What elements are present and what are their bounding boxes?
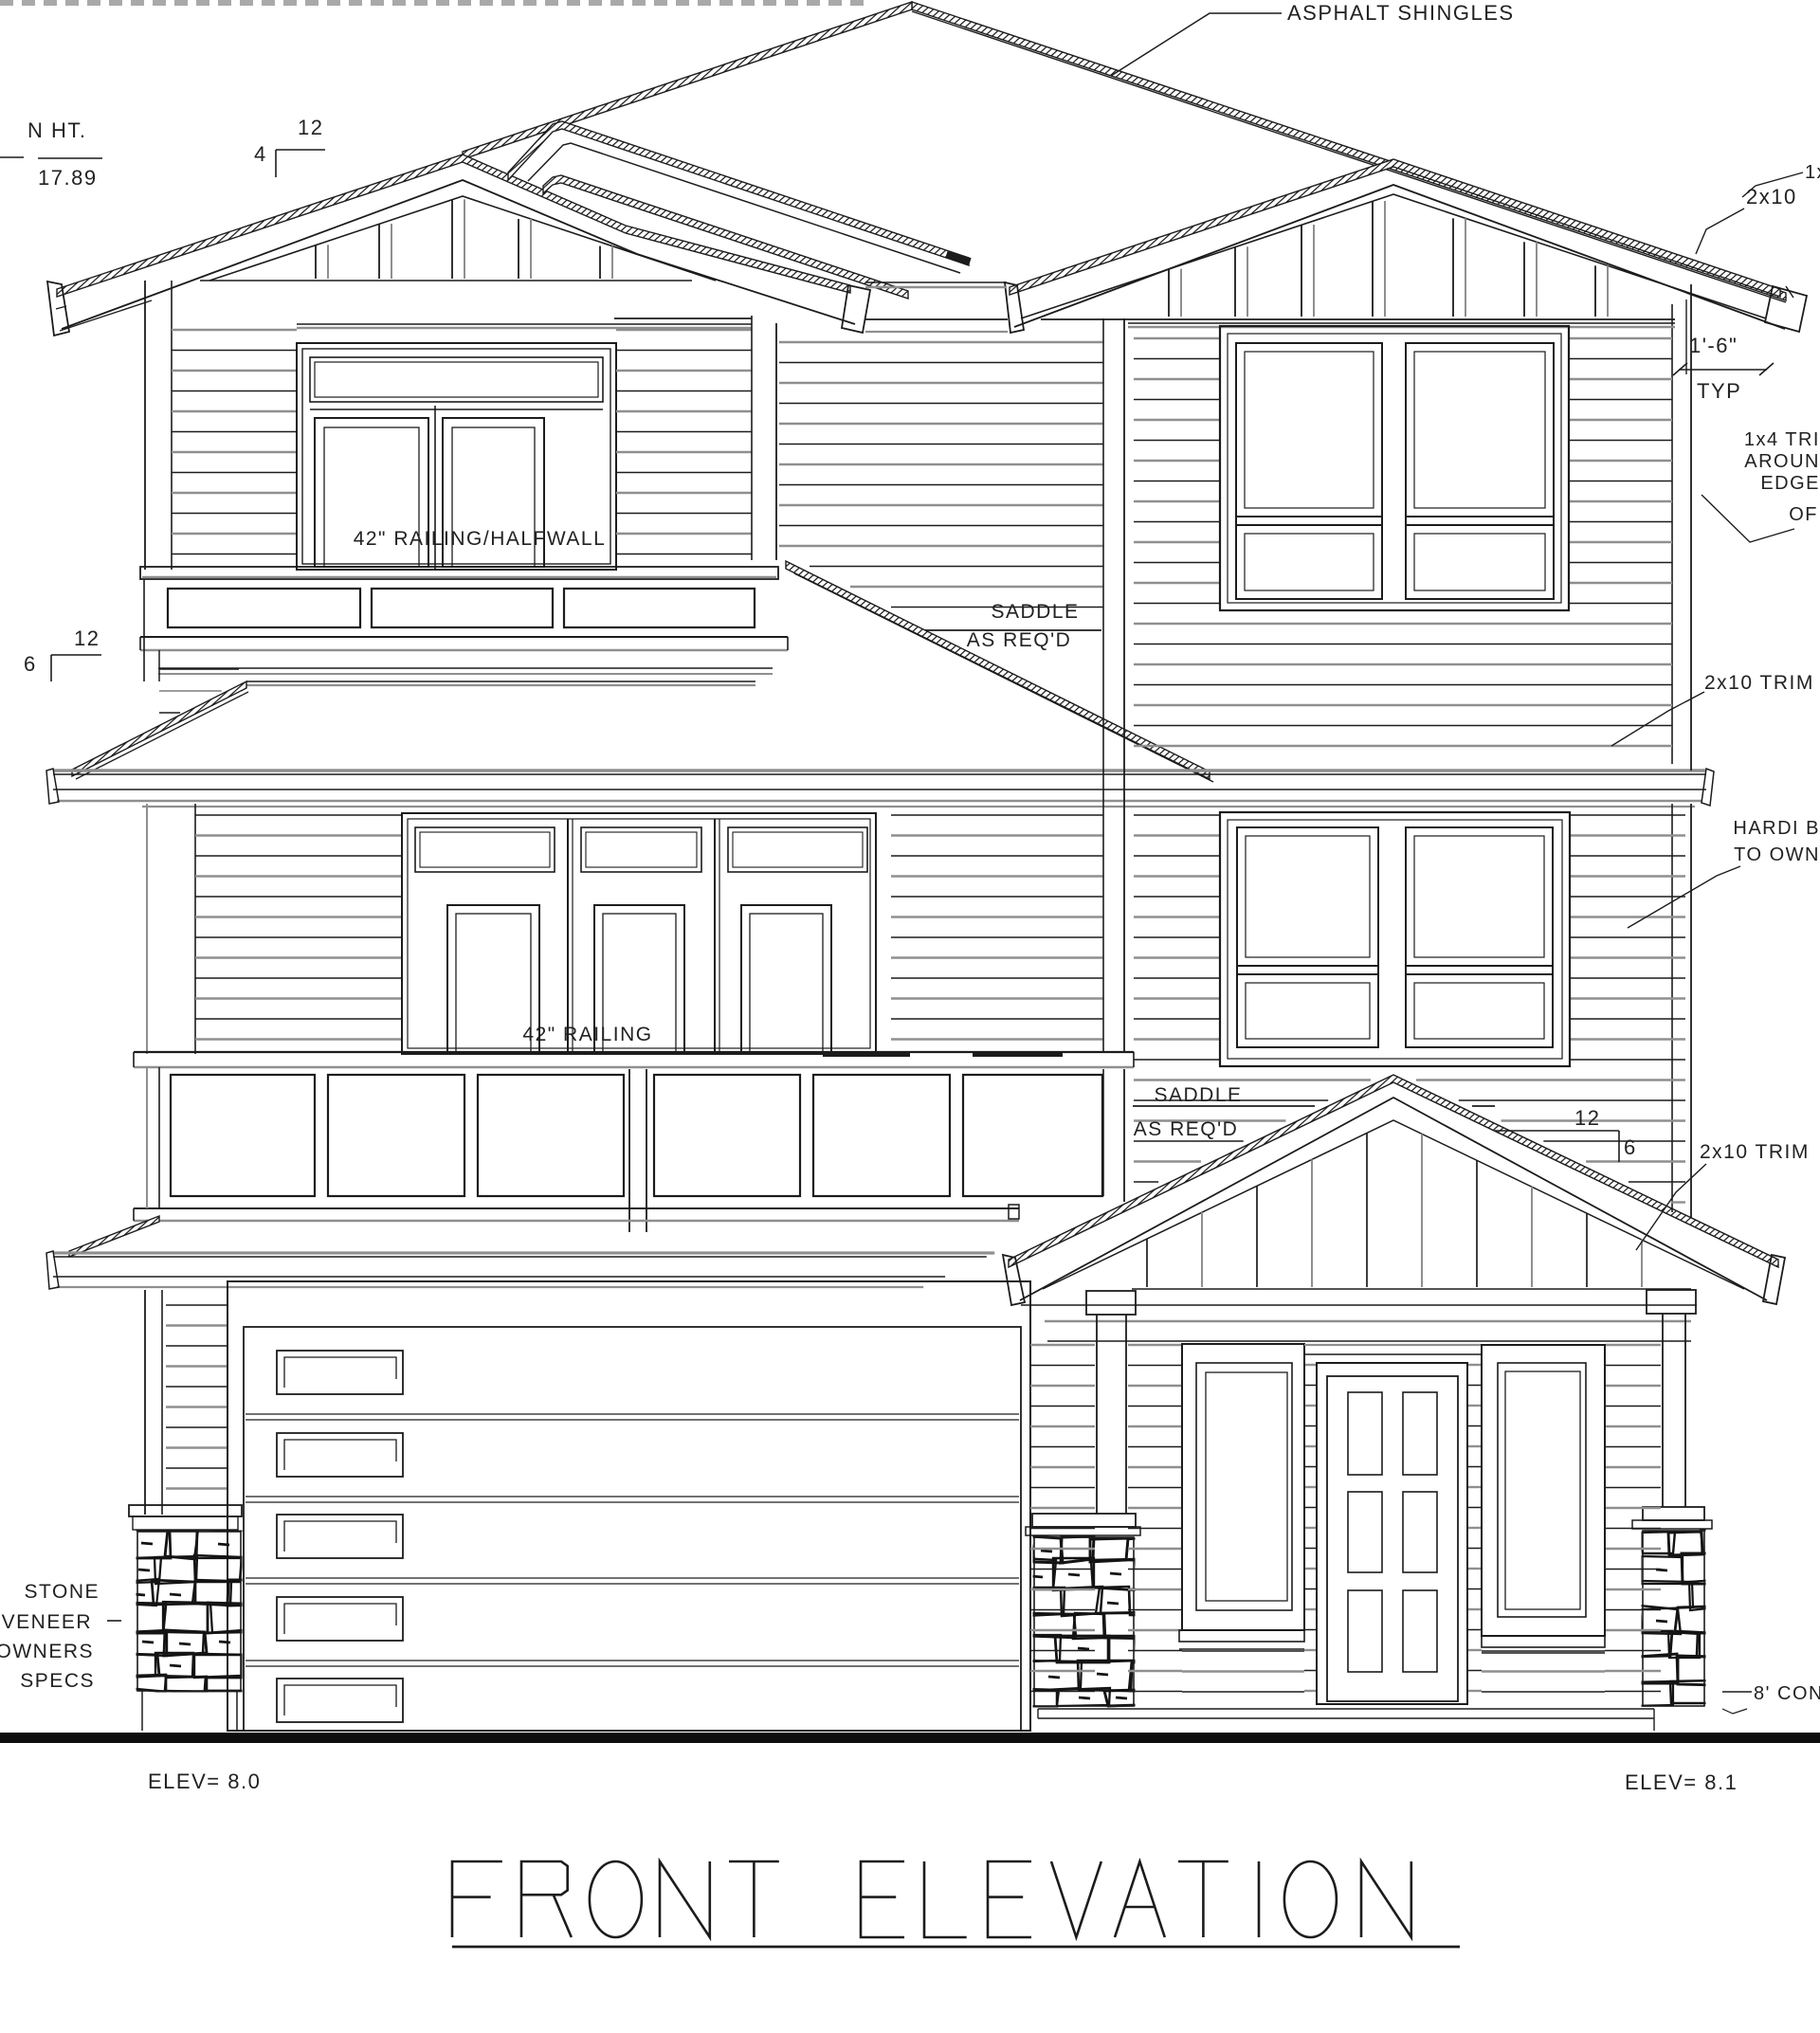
svg-text:2x10 TRIM: 2x10 TRIM [1704, 672, 1814, 694]
svg-text:AS REQ'D: AS REQ'D [967, 629, 1072, 651]
svg-text:17.89: 17.89 [38, 166, 98, 190]
svg-text:AROUN: AROUN [1744, 451, 1820, 472]
svg-text:4: 4 [254, 142, 267, 166]
svg-text:1x: 1x [1805, 162, 1820, 183]
svg-text:1x4 TRI: 1x4 TRI [1744, 429, 1820, 450]
svg-text:42" RAILING/HALFWALL: 42" RAILING/HALFWALL [354, 528, 607, 550]
svg-text:TYP: TYP [1697, 379, 1741, 403]
svg-text:12: 12 [1574, 1106, 1600, 1130]
svg-text:12: 12 [74, 626, 100, 650]
svg-text:2x10 TRIM: 2x10 TRIM [1700, 1141, 1810, 1163]
svg-text:SPECS: SPECS [20, 1670, 95, 1692]
svg-text:ELEV= 8.1: ELEV= 8.1 [1625, 1770, 1738, 1794]
svg-text:6: 6 [24, 652, 37, 676]
svg-text:OWNERS: OWNERS [0, 1641, 94, 1662]
svg-text:N HT.: N HT. [27, 118, 87, 142]
svg-text:SADDLE: SADDLE [991, 601, 1079, 623]
svg-text:12: 12 [298, 116, 323, 139]
svg-text:TO OWN: TO OWN [1734, 844, 1820, 865]
svg-text:2x10: 2x10 [1746, 185, 1797, 209]
svg-text:42" RAILING: 42" RAILING [522, 1024, 652, 1045]
svg-text:STONE: STONE [25, 1581, 100, 1603]
svg-text:OF: OF [1789, 504, 1818, 525]
svg-text:8' CONC: 8' CONC [1754, 1683, 1820, 1704]
svg-text:1'-6": 1'-6" [1689, 334, 1738, 357]
svg-text:ASPHALT SHINGLES: ASPHALT SHINGLES [1287, 1, 1515, 25]
svg-text:EDGE: EDGE [1760, 473, 1820, 494]
svg-text:ELEV= 8.0: ELEV= 8.0 [148, 1770, 261, 1793]
svg-text:SADDLE: SADDLE [1154, 1084, 1242, 1106]
svg-text:VENEER: VENEER [2, 1611, 92, 1633]
svg-text:AS REQ'D: AS REQ'D [1134, 1118, 1239, 1140]
svg-text:HARDI B: HARDI B [1733, 818, 1820, 839]
svg-text:6: 6 [1624, 1135, 1637, 1159]
